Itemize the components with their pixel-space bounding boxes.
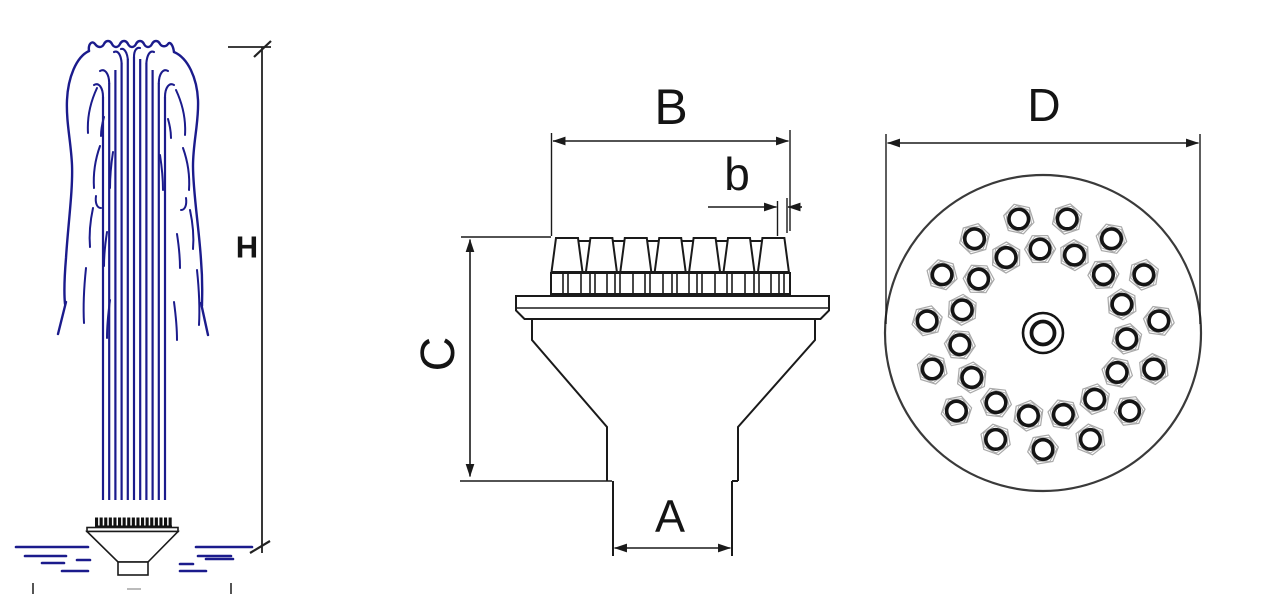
dim-label-inlet-width: A: [655, 494, 685, 539]
nozzle-port: [922, 359, 942, 379]
mini-nozzle-tip: [146, 518, 149, 527]
nozzle-tip-front: [758, 238, 789, 272]
nozzle-tip-front: [724, 238, 755, 272]
nozzle-port: [969, 269, 989, 289]
mini-nozzle-tip: [109, 518, 112, 527]
nozzle-port: [996, 248, 1016, 268]
mini-nozzle-tip: [155, 518, 158, 527]
dimension-b: [708, 198, 802, 236]
nozzle-port: [1054, 405, 1074, 425]
mini-nozzle-tip: [164, 518, 167, 527]
nozzle-port: [1081, 430, 1101, 450]
nozzle-port: [950, 335, 970, 355]
dim-label-body-height: C: [415, 337, 463, 372]
nozzle-port: [1019, 406, 1039, 426]
mini-nozzle-tip: [104, 518, 107, 527]
side-section-view: [460, 130, 829, 556]
nozzle-tip-front: [586, 238, 617, 272]
nozzle-port: [986, 393, 1006, 413]
mini-nozzle-tip: [169, 518, 172, 527]
nozzle-port: [1107, 363, 1127, 383]
mini-nozzle-tip: [127, 518, 130, 527]
technical-drawing-svg: [0, 0, 1268, 609]
nozzle-port: [965, 229, 985, 249]
dimension-H: [228, 41, 271, 553]
dim-label-nozzle-width: b: [724, 151, 750, 197]
jet-streams: [103, 57, 165, 500]
nozzle-port: [986, 430, 1006, 450]
center-nozzle: [1023, 313, 1063, 353]
nozzle-port: [952, 300, 972, 320]
mini-nozzle-tip: [123, 518, 126, 527]
spray-elevation-view: [16, 41, 271, 594]
mini-nozzle-tip: [141, 518, 144, 527]
mini-inlet-pipe: [118, 562, 148, 575]
top-plan-view: [885, 134, 1201, 491]
nozzle-port: [947, 401, 967, 421]
mini-nozzle-tip: [159, 518, 162, 527]
mini-funnel-body: [87, 532, 178, 563]
mini-nozzle-tip: [95, 518, 98, 527]
nozzle-port: [1085, 389, 1105, 409]
mini-nozzle: [87, 518, 178, 576]
bottom-edge-ticks: [33, 583, 231, 594]
nozzle-tip-front: [620, 238, 651, 272]
center-nozzle-inner-ring: [1032, 322, 1055, 345]
mini-nozzle-tip: [136, 518, 139, 527]
hex-nut-row: [551, 273, 790, 294]
spray-accent-arcs: [84, 88, 200, 340]
dim-label-height: H: [236, 232, 258, 263]
dimension-B: [552, 130, 791, 236]
mini-nozzle-tip: [100, 518, 103, 527]
mini-nozzle-tips: [95, 518, 172, 527]
drawing-canvas: H B b C A D: [0, 0, 1268, 609]
nozzle-port: [917, 311, 937, 331]
nozzle-port: [1094, 265, 1114, 285]
nozzle-port: [1102, 229, 1122, 249]
nozzle-port: [932, 265, 952, 285]
nozzle-port: [1112, 294, 1132, 314]
mini-nozzle-tip: [118, 518, 121, 527]
nozzle-port: [1120, 401, 1140, 421]
nozzle-tip-front: [552, 238, 583, 272]
nozzle-port: [1134, 265, 1154, 285]
nozzle-tip-row: [552, 238, 789, 272]
mini-nozzle-tip: [132, 518, 135, 527]
dim-label-head-width: B: [654, 82, 687, 132]
nozzle-port: [1009, 209, 1029, 229]
mini-nozzle-tip: [150, 518, 153, 527]
nozzle-tip-front: [689, 238, 720, 272]
nozzle-port: [962, 368, 982, 388]
nozzle-port: [1149, 311, 1169, 331]
nozzle-port: [1033, 440, 1053, 460]
nozzle-port: [1117, 329, 1137, 349]
mini-nozzle-tip: [113, 518, 116, 527]
dim-label-diameter: D: [1027, 82, 1060, 128]
nozzle-tip-front: [655, 238, 686, 272]
nozzle-port: [1144, 359, 1164, 379]
nozzle-port: [1065, 245, 1085, 265]
nozzle-port: [1057, 209, 1077, 229]
nozzle-port: [1030, 239, 1050, 259]
